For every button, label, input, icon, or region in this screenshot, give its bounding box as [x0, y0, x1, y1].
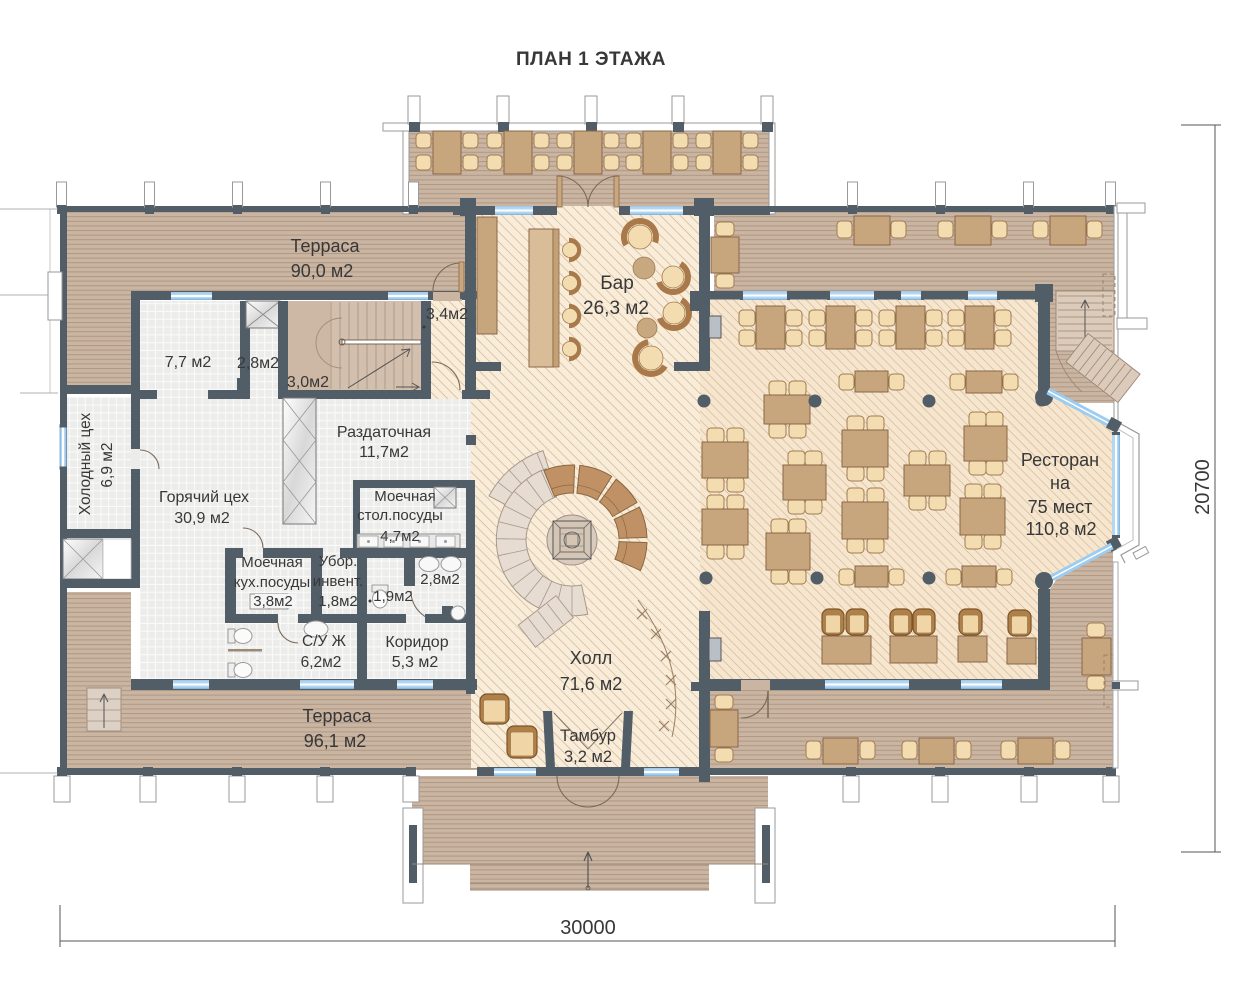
- svg-text:5,3 м2: 5,3 м2: [392, 654, 439, 671]
- svg-text:6,2м2: 6,2м2: [301, 654, 342, 671]
- svg-text:инвент.: инвент.: [313, 573, 363, 590]
- svg-text:7,7 м2: 7,7 м2: [165, 354, 212, 371]
- svg-text:стол.посуды: стол.посуды: [357, 507, 443, 524]
- svg-text:30000: 30000: [560, 917, 616, 939]
- svg-text:30,9 м2: 30,9 м2: [174, 510, 230, 527]
- svg-text:4,7м2: 4,7м2: [380, 528, 420, 545]
- svg-text:Убор.: Убор.: [319, 553, 358, 570]
- svg-text:Терраса: Терраса: [302, 706, 372, 726]
- svg-text:Моечная: Моечная: [241, 554, 302, 571]
- svg-text:Ресторан: Ресторан: [1021, 450, 1099, 470]
- svg-text:С/У Ж: С/У Ж: [302, 633, 347, 650]
- svg-text:3,0м2: 3,0м2: [287, 374, 329, 391]
- svg-text:1,8м2: 1,8м2: [318, 593, 358, 610]
- svg-text:3,8м2: 3,8м2: [253, 593, 293, 610]
- svg-text:Бар: Бар: [600, 273, 634, 294]
- svg-text:2,8м2: 2,8м2: [237, 355, 279, 372]
- svg-text:Горячий цех: Горячий цех: [159, 489, 249, 506]
- svg-text:Моечная: Моечная: [374, 488, 435, 505]
- svg-text:90,0 м2: 90,0 м2: [291, 261, 353, 281]
- svg-text:20700: 20700: [1192, 459, 1214, 515]
- svg-text:Холл: Холл: [570, 648, 612, 668]
- svg-text:110,8 м2: 110,8 м2: [1025, 519, 1096, 539]
- svg-text:6,9 м2: 6,9 м2: [99, 442, 116, 487]
- svg-text:75 мест: 75 мест: [1028, 497, 1093, 517]
- svg-text:71,6 м2: 71,6 м2: [560, 674, 622, 694]
- svg-text:26,3 м2: 26,3 м2: [583, 298, 649, 319]
- svg-text:Терраса: Терраса: [290, 236, 360, 256]
- svg-text:2,8м2: 2,8м2: [420, 571, 460, 588]
- svg-text:на: на: [1050, 473, 1071, 493]
- svg-text:ПЛАН 1 ЭТАЖА: ПЛАН 1 ЭТАЖА: [516, 49, 666, 70]
- svg-text:96,1 м2: 96,1 м2: [304, 731, 366, 751]
- svg-text:кух.посуды: кух.посуды: [234, 574, 310, 591]
- svg-text:Раздаточная: Раздаточная: [337, 424, 431, 441]
- svg-text:11,7м2: 11,7м2: [359, 444, 409, 461]
- svg-text:Коридор: Коридор: [385, 634, 448, 651]
- svg-text:1,9м2: 1,9м2: [373, 588, 413, 605]
- svg-text:Тамбур: Тамбур: [560, 727, 616, 745]
- svg-text:3,2 м2: 3,2 м2: [564, 748, 612, 766]
- svg-text:3,4м2: 3,4м2: [426, 306, 468, 323]
- svg-text:Холодный цех: Холодный цех: [77, 413, 94, 516]
